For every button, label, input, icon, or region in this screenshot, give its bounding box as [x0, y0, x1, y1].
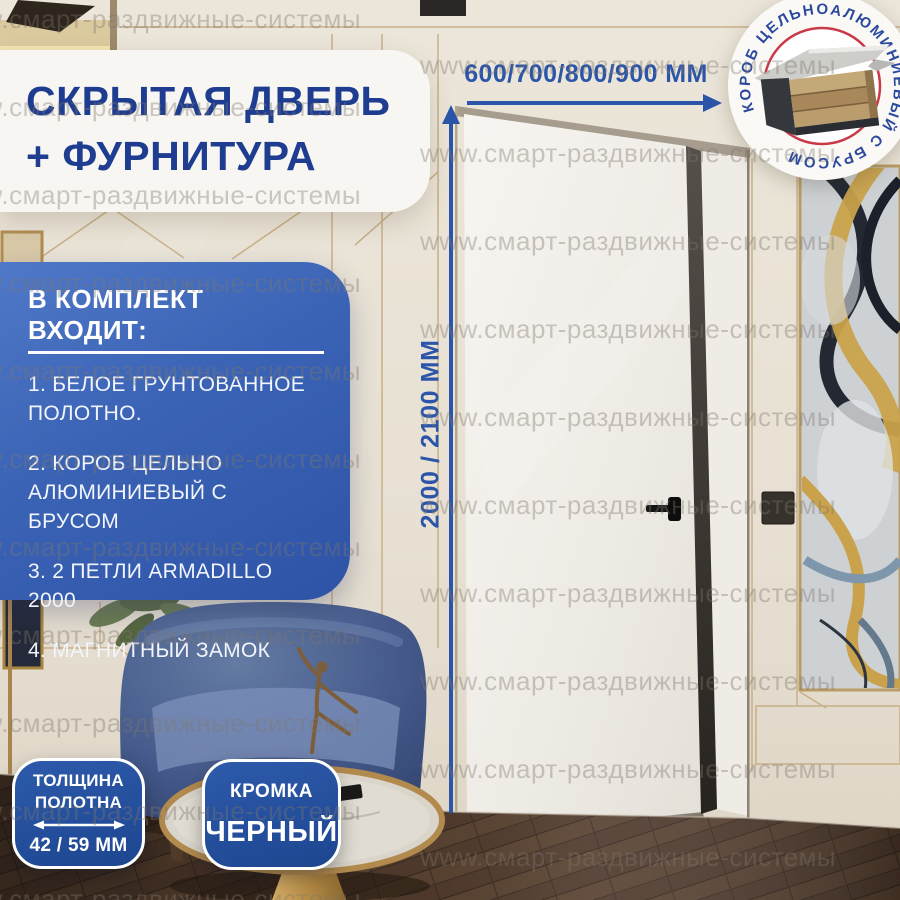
frame-profile-badge: КОРОБ ЦЕЛЬНОАЛЮМИНИЕВЫЙ С БРУСОМ: [726, 0, 900, 182]
title-card: СКРЫТАЯ ДВЕРЬ + ФУРНИТУРА: [0, 50, 430, 212]
height-arrowhead-icon: [442, 105, 460, 124]
thickness-badge: ТОЛЩИНА ПОЛОТНА 42 / 59 ММ: [12, 758, 145, 869]
double-arrow-icon: [31, 818, 127, 832]
page-title-line1: СКРЫТАЯ ДВЕРЬ: [26, 74, 410, 129]
door-width-label: 600/700/800/900 ММ: [440, 60, 732, 89]
page-title-line2: + ФУРНИТУРА: [26, 129, 410, 184]
edge-badge-label: КРОМКА: [230, 781, 313, 803]
thickness-badge-value: 42 / 59 ММ: [29, 835, 127, 857]
thickness-badge-title: ТОЛЩИНА ПОЛОТНА: [19, 770, 138, 813]
includes-item-4: 4. МАГНИТНЫЙ ЗАМОК: [28, 637, 324, 666]
edge-badge-value: ЧЕРНЫЙ: [205, 816, 337, 849]
includes-item-2: 2. КОРОБ ЦЕЛЬНО АЛЮМИНИЕВЫЙ С БРУСОМ: [28, 450, 324, 537]
includes-heading: В КОМПЛЕКТ ВХОДИТ:: [28, 284, 324, 354]
includes-item-1: 1. БЕЛОЕ ГРУНТОВАННОЕ ПОЛОТНО.: [28, 371, 324, 429]
includes-item-3: 3. 2 ПЕТЛИ ARMADILLO 2000: [28, 558, 324, 616]
door-height-label: 2000 / 2100 ММ: [417, 339, 446, 528]
product-image: 600/700/800/900 ММ 2000 / 2100 ММ КОРОБ …: [0, 0, 900, 900]
includes-card: В КОМПЛЕКТ ВХОДИТ: 1. БЕЛОЕ ГРУНТОВАННОЕ…: [0, 262, 350, 600]
edge-color-badge: КРОМКА ЧЕРНЫЙ: [202, 759, 341, 870]
width-arrowhead-icon: [703, 94, 722, 112]
